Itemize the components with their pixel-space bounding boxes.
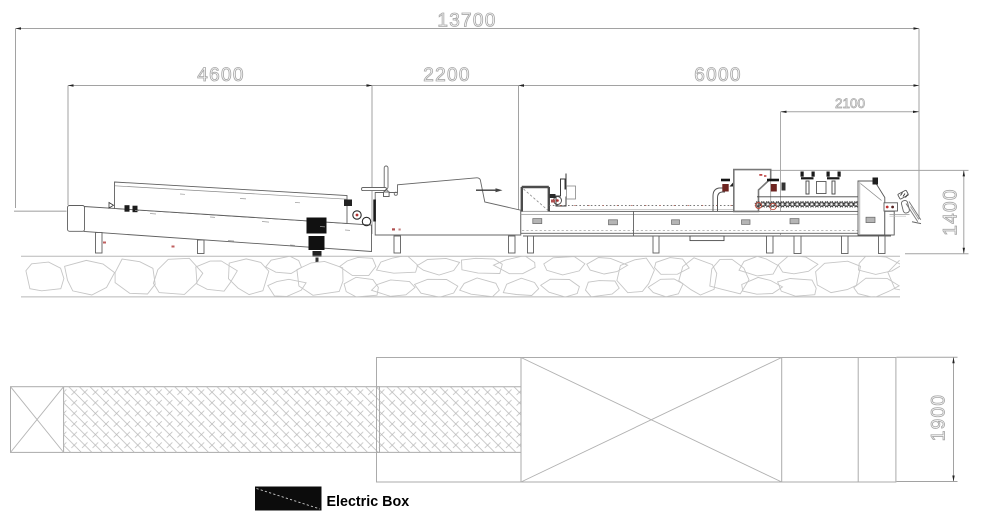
- svg-text:6000: 6000: [694, 65, 741, 86]
- svg-text:1900: 1900: [929, 394, 950, 441]
- svg-text:1400: 1400: [941, 188, 962, 235]
- svg-text:Electric Box: Electric Box: [327, 494, 410, 510]
- svg-text:13700: 13700: [437, 11, 496, 32]
- svg-text:2100: 2100: [835, 96, 865, 111]
- svg-text:2200: 2200: [423, 65, 470, 86]
- svg-text:4600: 4600: [197, 65, 244, 86]
